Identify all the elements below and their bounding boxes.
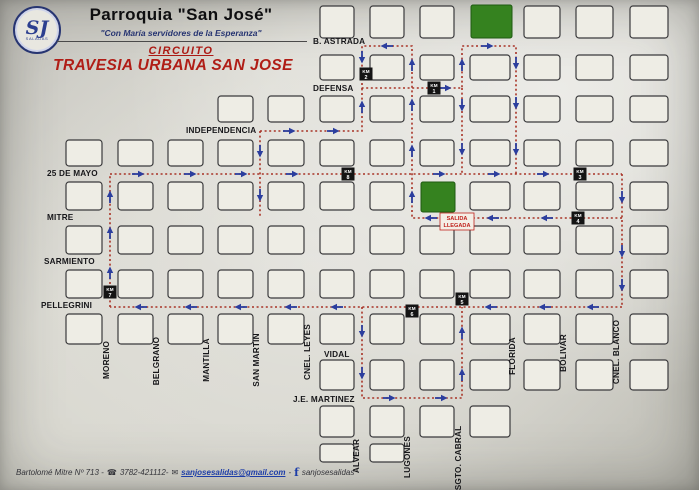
city-block [370,226,404,254]
city-block [420,406,454,437]
city-block [470,226,510,254]
svg-text:LLEGADA: LLEGADA [443,223,470,229]
svg-text:6: 6 [411,312,414,318]
city-block [420,314,454,344]
route-direction-arrow [459,327,465,340]
street-label-horizontal: VIDAL [324,350,350,359]
city-block [66,314,102,344]
svg-text:KM: KM [408,306,415,311]
svg-text:KM: KM [458,294,465,299]
route-direction-arrow [283,128,296,134]
street-label-vertical: FLORIDA [508,337,517,375]
route-direction-arrow [409,59,415,72]
route-direction-arrow [257,145,263,158]
km-marker: KM1 [428,82,441,96]
city-block [630,55,668,80]
svg-text:KM: KM [430,83,437,88]
city-block [576,226,613,254]
city-block [576,55,613,80]
route-direction-arrow [439,85,452,91]
city-block [320,96,354,122]
route-direction-arrow [135,304,148,310]
city-block [168,140,203,166]
svg-text:KM: KM [344,169,351,174]
route-direction-arrow [185,304,198,310]
svg-text:4: 4 [577,219,580,225]
svg-text:7: 7 [109,293,112,299]
footer-contact-line: Bartolomé Mitre Nº 713 - ☎ 3782-421112- … [16,466,686,479]
city-block [320,182,354,210]
route-direction-arrow [107,191,113,204]
route-direction-arrow [481,43,494,49]
logo-subtext: SALADAS [26,36,49,41]
route-direction-arrow [286,171,299,177]
city-block [370,314,404,344]
city-block [524,182,560,210]
city-block [320,406,354,437]
city-block [420,360,454,390]
city-block [268,182,304,210]
svg-text:KM: KM [574,213,581,218]
svg-text:1: 1 [433,89,436,95]
route-direction-arrow [459,369,465,382]
route-direction-arrow [257,189,263,202]
svg-text:8: 8 [347,175,350,181]
city-block [576,140,613,166]
footer-separator: - [288,468,291,477]
route-direction-arrow [587,304,600,310]
km-marker: KM6 [406,305,419,319]
route-direction-arrow [132,171,145,177]
svg-text:KM: KM [362,69,369,74]
route-direction-arrow [459,143,465,156]
route-direction-arrow [359,51,365,64]
route-title: TRAVESIA URBANA SAN JOSE [6,57,340,75]
street-label-vertical: MANTILLA [202,338,211,381]
route-direction-arrow [285,304,298,310]
street-label-vertical: MORENO [102,341,111,379]
city-block [268,314,304,344]
km-marker: KM2 [360,68,373,82]
city-block [630,140,668,166]
street-label-vertical: CNEL. LEYES [303,324,312,380]
city-block [576,360,613,390]
city-block [320,6,354,38]
street-label-horizontal: J.E. MARTINEZ [293,395,355,404]
city-block [576,270,613,298]
city-block [218,314,253,344]
city-block [420,6,454,38]
parish-logo: SJ SALADAS [13,6,61,54]
city-block [268,226,304,254]
city-block [470,140,510,166]
city-block [268,96,304,122]
street-label-horizontal: SARMIENTO [44,257,95,266]
svg-text:3: 3 [579,175,582,181]
city-block [630,96,668,122]
city-block [168,182,203,210]
route-direction-arrow [619,245,625,258]
green-landmark-block [421,182,455,212]
city-block [218,270,253,298]
footer-address: Bartolomé Mitre Nº 713 - [16,468,104,477]
start-finish-box: SALIDALLEGADA [440,213,474,230]
svg-text:5: 5 [461,300,464,306]
street-label-horizontal: 25 DE MAYO [47,169,98,178]
city-block [168,314,203,344]
street-label-horizontal: INDEPENDENCIA [186,126,256,135]
city-block [320,444,354,462]
route-direction-arrow [184,171,197,177]
route-direction-arrow [513,97,519,110]
city-block [320,226,354,254]
city-block [218,182,253,210]
street-label-vertical: BELGRANO [152,336,161,385]
city-block [370,6,404,38]
city-block [370,406,404,437]
city-block [470,96,510,122]
route-direction-arrow [539,304,552,310]
route-direction-arrow [513,143,519,156]
green-landmark-block [471,5,512,38]
route-direction-arrow [433,171,446,177]
city-block [118,314,153,344]
route-direction-arrow [327,128,340,134]
route-direction-arrow [435,395,448,401]
city-block [524,314,560,344]
route-direction-arrow [235,304,248,310]
city-block [524,55,560,80]
scanned-map-photo: SJ SALADAS Parroquia "San José" "Con Mar… [0,0,699,490]
city-block [320,270,354,298]
city-block [420,96,454,122]
city-block [470,360,510,390]
street-label-horizontal: PELLEGRINI [41,301,92,310]
route-direction-arrow [107,227,113,240]
svg-text:2: 2 [365,75,368,81]
route-direction-arrow [383,395,396,401]
city-block [470,406,510,437]
city-block [168,226,203,254]
city-block [118,140,153,166]
street-label-vertical: CNEL. BLANCO [612,319,621,384]
city-block [420,140,454,166]
city-block [370,182,404,210]
street-label-vertical: BOLIVAR [559,334,568,372]
city-block [268,140,304,166]
city-block [118,226,153,254]
city-block [630,270,668,298]
street-label-vertical: SAN MARTIN [252,333,261,386]
city-block [524,360,560,390]
city-block [66,140,102,166]
street-label-vertical: SGTO. CABRAL [454,426,463,490]
street-label-horizontal: MITRE [47,213,74,222]
svg-text:SALIDA: SALIDA [447,216,468,222]
city-block [420,270,454,298]
city-block [630,182,668,210]
footer-facebook: sanjosesalidas [302,468,354,477]
footer-phone: 3782-421112- [120,468,169,477]
city-block [576,314,613,344]
city-block [630,360,668,390]
route-direction-arrow [409,145,415,158]
km-marker: KM7 [104,286,117,300]
city-block [524,270,560,298]
page-subtitle: "Con María servidores de la Esperanza" [58,28,304,38]
city-block [218,96,253,122]
city-block [576,6,613,38]
route-direction-arrow [107,267,113,280]
route-direction-arrow [537,171,550,177]
city-block [470,182,510,210]
city-block [118,270,153,298]
route-direction-arrow [485,304,498,310]
circuit-label: CIRCUITO [58,45,304,57]
route-direction-arrow [459,99,465,112]
footer-email: sanjosesalidas@gmail.com [181,468,285,477]
street-label-horizontal: DEFENSA [313,84,354,93]
envelope-icon: ✉ [171,468,178,477]
km-marker: KM4 [572,212,585,226]
route-direction-arrow [459,59,465,72]
header-divider [57,41,307,42]
route-direction-arrow [359,367,365,380]
city-block [66,270,102,298]
city-block [118,182,153,210]
km-marker: KM3 [574,168,587,182]
city-block [630,314,668,344]
route-direction-arrow [487,215,500,221]
city-block [320,360,354,390]
route-direction-arrow [235,171,248,177]
city-block [630,226,668,254]
city-block [370,270,404,298]
facebook-icon: f [294,466,299,479]
svg-text:KM: KM [106,287,113,292]
city-block [66,182,102,210]
route-direction-arrow [541,215,554,221]
city-block [370,96,404,122]
city-block [524,6,560,38]
city-block [320,314,354,344]
phone-icon: ☎ [107,468,117,477]
route-direction-arrow [359,325,365,338]
page-title: Parroquia "San José" [58,5,304,25]
logo-monogram: SJ [26,20,49,36]
city-block [524,140,560,166]
city-block [576,182,613,210]
city-block [218,226,253,254]
route-direction-arrow [409,99,415,112]
route-direction-arrow [331,304,344,310]
route-direction-arrow [488,171,501,177]
km-marker: KM8 [342,168,355,182]
svg-text:KM: KM [576,169,583,174]
city-block [168,270,203,298]
city-block [370,55,404,80]
city-block [218,140,253,166]
street-label-horizontal: B. ASTRADA [313,37,365,46]
city-block [370,140,404,166]
city-block [66,226,102,254]
city-block [470,270,510,298]
city-block [576,96,613,122]
city-block [470,55,510,80]
city-block [370,444,404,462]
route-direction-arrow [619,279,625,292]
route-direction-arrow [381,43,394,49]
route-direction-arrow [409,191,415,204]
city-block [320,140,354,166]
route-direction-arrow [513,57,519,70]
city-block [370,360,404,390]
city-block [524,226,560,254]
city-block [420,55,454,80]
city-block [470,314,510,344]
route-direction-arrow [425,215,438,221]
route-direction-arrow [619,191,625,204]
city-block [630,6,668,38]
km-marker: KM5 [456,293,469,307]
city-block [524,96,560,122]
route-direction-arrow [359,101,365,114]
city-block [268,270,304,298]
